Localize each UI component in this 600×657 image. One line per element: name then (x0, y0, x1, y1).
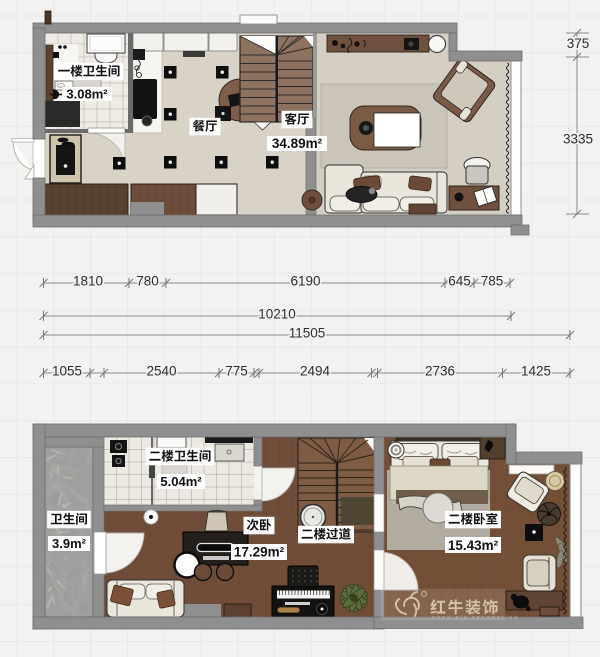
svg-text:375: 375 (567, 36, 590, 51)
svg-text:780: 780 (136, 274, 159, 289)
svg-text:HONG NIU DECORATION: HONG NIU DECORATION (432, 615, 519, 620)
svg-text:1425: 1425 (521, 364, 551, 379)
svg-text:645: 645 (448, 274, 471, 289)
svg-text:2540: 2540 (146, 364, 176, 379)
svg-text:10210: 10210 (258, 307, 296, 322)
svg-text:3.9m²: 3.9m² (52, 536, 87, 551)
svg-text:11505: 11505 (289, 326, 326, 341)
svg-text:2494: 2494 (300, 364, 331, 379)
svg-text:1810: 1810 (73, 274, 103, 289)
svg-text:5.04m²: 5.04m² (160, 474, 202, 489)
svg-text:34.89m²: 34.89m² (272, 136, 323, 151)
svg-text:15.43m²: 15.43m² (448, 538, 499, 553)
svg-text:17.29m²: 17.29m² (234, 545, 285, 560)
svg-text:2736: 2736 (425, 364, 455, 379)
svg-text:775: 775 (225, 364, 248, 379)
svg-text:785: 785 (481, 274, 504, 289)
svg-text:6190: 6190 (290, 274, 320, 289)
svg-text:1055: 1055 (52, 364, 82, 379)
svg-text:3335: 3335 (563, 132, 593, 147)
svg-text:3.08m²: 3.08m² (66, 87, 108, 102)
